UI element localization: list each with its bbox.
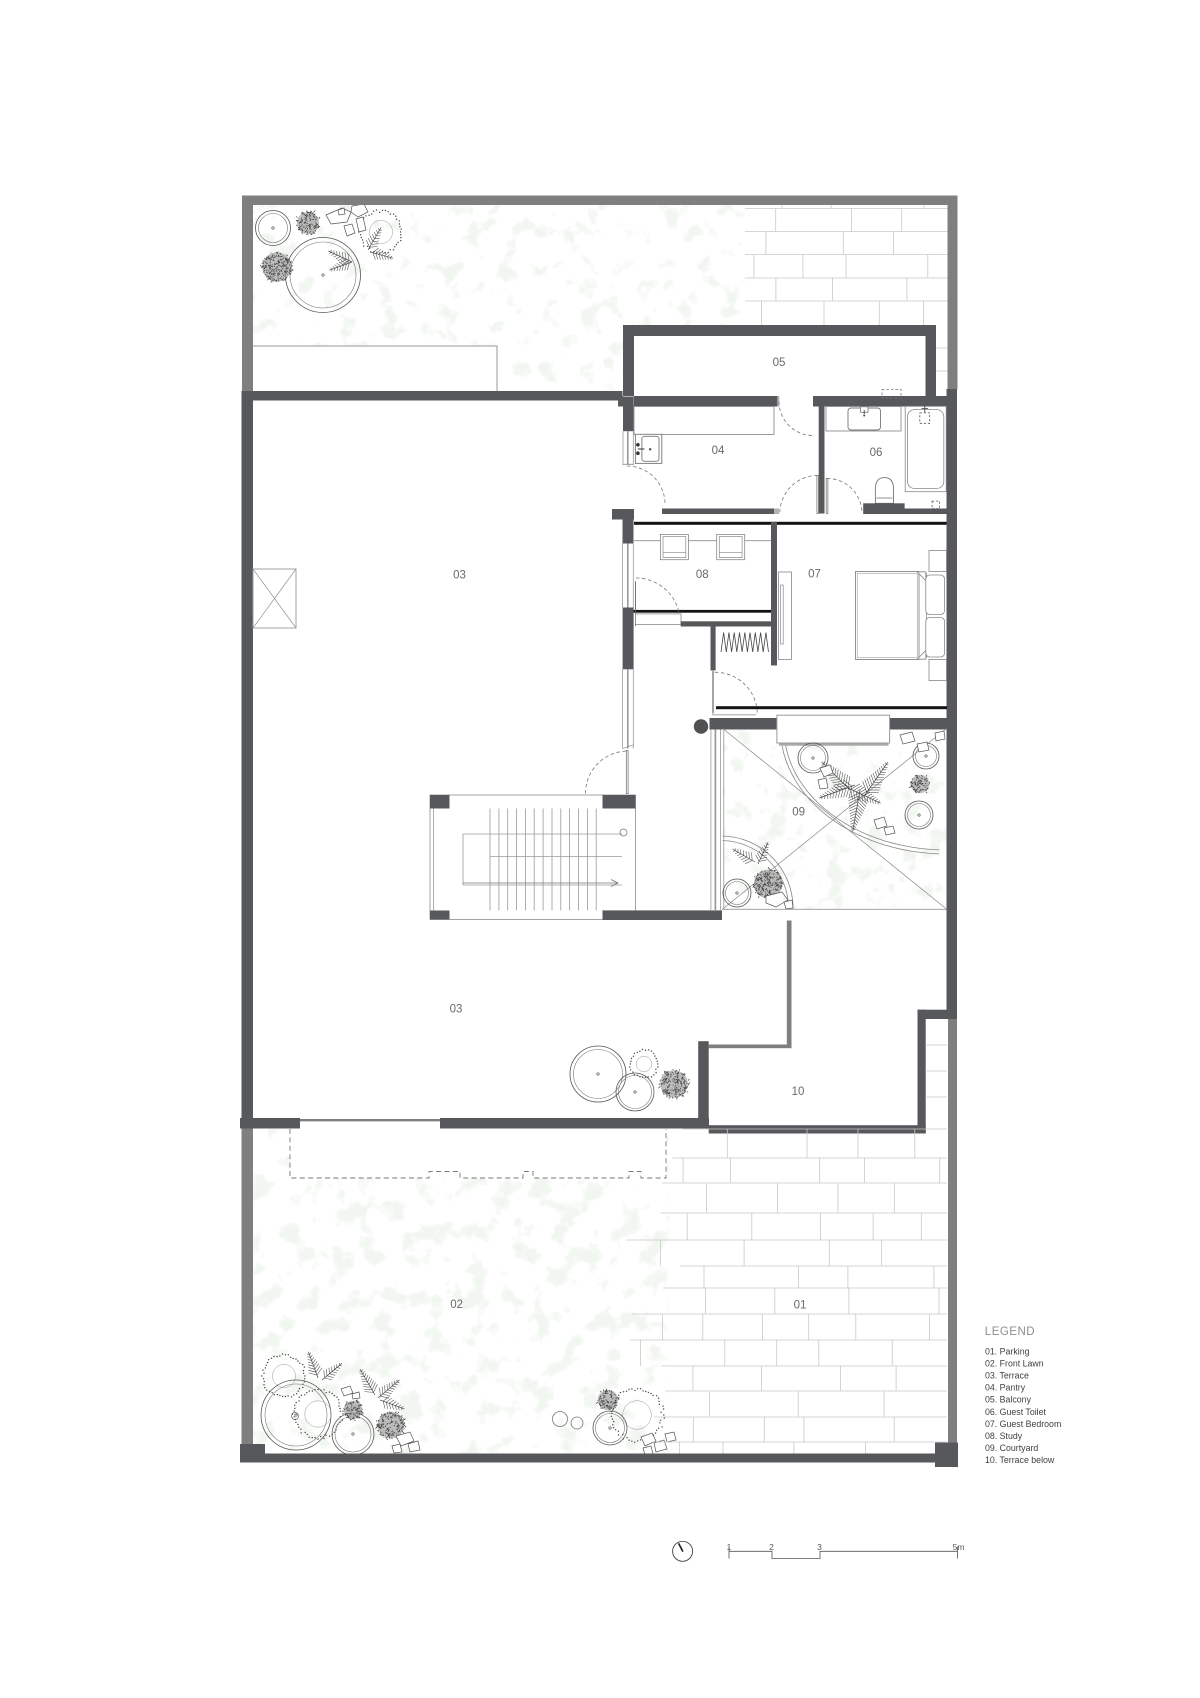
svg-text:3: 3 [817, 1542, 822, 1552]
svg-text:10: 10 [792, 1086, 805, 1098]
svg-text:03: 03 [450, 1004, 463, 1016]
svg-text:07: 07 [808, 569, 821, 581]
svg-text:05: 05 [773, 357, 786, 369]
svg-text:02. Front Lawn: 02. Front Lawn [985, 1359, 1044, 1369]
svg-text:01: 01 [794, 1300, 807, 1312]
svg-text:01. Parking: 01. Parking [985, 1347, 1030, 1357]
svg-text:5m: 5m [953, 1542, 965, 1552]
svg-text:10. Terrace below: 10. Terrace below [985, 1455, 1055, 1465]
svg-text:06: 06 [870, 447, 883, 459]
svg-text:06. Guest Toilet: 06. Guest Toilet [985, 1407, 1047, 1417]
svg-text:LEGEND: LEGEND [985, 1326, 1035, 1338]
svg-text:09: 09 [792, 807, 805, 819]
svg-text:08: 08 [696, 569, 709, 581]
svg-text:09. Courtyard: 09. Courtyard [985, 1443, 1038, 1453]
svg-text:04: 04 [712, 445, 725, 457]
svg-text:03. Terrace: 03. Terrace [985, 1371, 1029, 1381]
svg-text:1: 1 [727, 1542, 732, 1552]
svg-text:07. Guest Bedroom: 07. Guest Bedroom [985, 1419, 1061, 1429]
svg-text:05. Balcony: 05. Balcony [985, 1395, 1032, 1405]
svg-text:08. Study: 08. Study [985, 1431, 1023, 1441]
svg-text:03: 03 [453, 570, 466, 582]
svg-text:2: 2 [769, 1542, 774, 1552]
svg-text:02: 02 [450, 1299, 463, 1311]
svg-text:04. Pantry: 04. Pantry [985, 1383, 1026, 1393]
